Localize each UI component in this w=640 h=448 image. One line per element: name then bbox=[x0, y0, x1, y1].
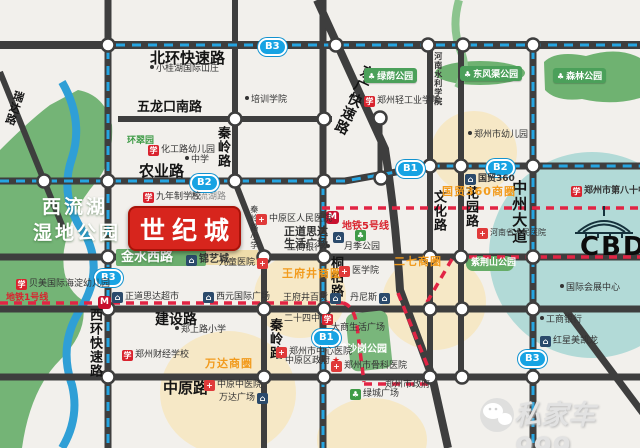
poi-label: 红星美凯龙 bbox=[553, 336, 598, 346]
poi-hongxing-macalline: ⌂红星美凯龙 bbox=[540, 336, 598, 347]
shop-icon: ⌂ bbox=[540, 336, 551, 347]
poi-icbc-east: 工商银行 bbox=[540, 316, 582, 326]
road-label-wulongkou: 五龙口南路 bbox=[137, 101, 202, 115]
shop-icon: ⌂ bbox=[112, 292, 123, 303]
poi-label: 中学 bbox=[191, 155, 209, 165]
poi-label: 锦艺城 bbox=[199, 254, 229, 265]
poi-label: 化工路幼儿园 bbox=[161, 145, 215, 155]
poi-zhengzhou-kindergarten: 郑州市幼儿园 bbox=[468, 131, 528, 141]
dot-icon bbox=[185, 156, 189, 160]
school-icon: 学 bbox=[143, 192, 154, 203]
watermark-text: 私家车999 bbox=[514, 393, 640, 448]
poi-label: 郑州市第八十中学 bbox=[584, 186, 640, 196]
poi-label: 河南省人民医院 bbox=[490, 228, 546, 237]
poi-label: 王府井百货 bbox=[283, 293, 328, 303]
lvyin-park-badge: ♣绿荫公园 bbox=[364, 68, 417, 83]
lvyin-park-label: 绿荫公园 bbox=[377, 72, 413, 82]
south-circle bbox=[317, 398, 427, 448]
forest-park-label: 森林公园 bbox=[566, 72, 602, 82]
poi-label: 郑上路小学 bbox=[181, 325, 226, 335]
school-icon: 学 bbox=[571, 186, 582, 197]
poi-guomao360: ⌂国贸360 bbox=[465, 174, 515, 185]
poi-label: 医学院 bbox=[352, 266, 379, 276]
brt-badge-b2-west: B2 bbox=[190, 174, 219, 192]
poi-wanda-plaza: 万达广场⌂ bbox=[219, 393, 268, 404]
shop-icon: ⌂ bbox=[333, 232, 344, 243]
poi-label: 中原区政府 bbox=[285, 356, 330, 366]
poi-yixueyuan: +医学院 bbox=[339, 266, 379, 277]
forest-park-badge: ♣森林公园 bbox=[553, 68, 606, 83]
dot-icon bbox=[540, 316, 544, 320]
zijingshan-park-label: 紫荆山公园 bbox=[471, 259, 516, 269]
dot-icon bbox=[326, 244, 330, 248]
poi-label: 丹尼斯 bbox=[350, 293, 377, 303]
dot-icon bbox=[245, 96, 249, 100]
poi-wangfujing-store: 王府井百货⌂ bbox=[283, 293, 341, 304]
wetland-park-label-1: 西流湖 bbox=[42, 197, 108, 218]
poi-caijing-school: 学郑州财经学校 bbox=[122, 350, 189, 361]
shijicheng-project-badge: 世纪城 bbox=[128, 206, 241, 251]
tree-icon: ♣ bbox=[368, 72, 375, 81]
school-icon: 学 bbox=[16, 279, 27, 290]
poi-label: 国贸360 bbox=[478, 174, 515, 184]
poi-label: 工商银行 bbox=[287, 243, 323, 253]
dot-icon bbox=[468, 131, 472, 135]
hospital-icon: + bbox=[331, 361, 342, 372]
poi-label: 正道思达超市 bbox=[125, 292, 179, 302]
erqi-district-label: 二七商圈 bbox=[394, 256, 442, 268]
wangfujing-district-label: 王府井商圈 bbox=[282, 268, 342, 280]
shop-icon: ⌂ bbox=[203, 292, 214, 303]
poi-label: 贝美国际海淀幼儿园 bbox=[29, 279, 110, 289]
poi-lvcheng-square: ♣绿城广场 bbox=[350, 389, 399, 400]
cbd-label: CBD bbox=[580, 232, 640, 262]
poi-jiunianzhi-school: 学九年制学校 bbox=[143, 192, 201, 203]
dot-icon bbox=[560, 284, 564, 288]
shop-icon: ⌂ bbox=[465, 174, 476, 185]
road-label-zhongyuan: 中原路 bbox=[163, 380, 208, 396]
school-icon: 学 bbox=[364, 96, 375, 107]
hospital-icon: + bbox=[477, 228, 488, 239]
park-icon: ♣ bbox=[350, 389, 361, 400]
poi-label: 郑州轻工业学院 bbox=[377, 96, 440, 106]
metro-logo-icon: M bbox=[98, 296, 111, 309]
wanda-district-label: 万达商圈 bbox=[205, 358, 253, 370]
poi-shuili-college: 河南水利学院 bbox=[433, 52, 442, 106]
hospital-icon: + bbox=[257, 258, 268, 269]
poi-guke-hospital: +郑州市骨科医院 bbox=[331, 361, 407, 372]
poi-xiyuan-plaza: ⌂西元国际广场 bbox=[203, 292, 270, 303]
shop-icon: ⌂ bbox=[257, 393, 268, 404]
wetland-park-label-2: 湿地公园 bbox=[33, 223, 121, 244]
metro-line1-label: 地铁1号线 bbox=[6, 294, 48, 304]
school-icon: 学 bbox=[122, 350, 133, 361]
road-label-nongye: 农业路 bbox=[139, 163, 184, 179]
poi-convention-center: 国际会展中心 bbox=[560, 284, 620, 294]
poi-dennis: 丹尼斯⌂ bbox=[350, 293, 390, 304]
brt-badge-b3-north: B3 bbox=[258, 38, 287, 56]
poi-peixun: 培训学院 bbox=[245, 96, 287, 106]
poi-ershisi-school: 二十四中学 bbox=[284, 314, 333, 325]
poi-label: 二十四中 bbox=[284, 314, 320, 324]
poi-label: 国际会展中心 bbox=[566, 283, 620, 293]
poi-dashang-plaza: 大商生活广场 bbox=[331, 324, 385, 334]
shop-icon: ⌂ bbox=[379, 293, 390, 304]
brt-badge-b1-north: B1 bbox=[396, 160, 425, 178]
dot-icon bbox=[175, 326, 179, 330]
hospital-icon: + bbox=[339, 266, 350, 277]
metro-line5-label: 地铁5号线 bbox=[342, 222, 389, 233]
hospital-icon: + bbox=[204, 380, 215, 391]
poi-zhengdao-market: ⌂正道思达超市 bbox=[112, 292, 179, 303]
poi-label: 中原中医院 bbox=[217, 380, 262, 390]
poi-xiaoguihu: 小桂湖国际山庄 bbox=[150, 65, 219, 75]
poi-jinyi-mall: ⌂锦艺城 bbox=[186, 254, 229, 266]
dongfengqu-park-label: 东风渠公园 bbox=[473, 70, 518, 80]
poi-label: 郑州财经学校 bbox=[135, 350, 189, 360]
poi-qinggong-university: 学郑州轻工业学院 bbox=[364, 96, 440, 107]
guomao-district-label: 国贸360商圈 bbox=[442, 186, 516, 198]
road-label-jinshui-west: 金水西路 bbox=[121, 251, 173, 265]
poi-renmin-hospital: +中原区人民医院 bbox=[256, 214, 332, 225]
brt-badge-b3-east: B3 bbox=[518, 350, 547, 368]
map-canvas: 北环快速路 五龙口南路 农业路 金水西路 建设路 中原路 瑞达路 京广快速路 秦… bbox=[0, 0, 640, 448]
poi-label: 万达广场 bbox=[219, 393, 255, 403]
poi-label: 绿城广场 bbox=[363, 389, 399, 399]
dot-icon bbox=[150, 65, 154, 69]
wechat-logo-icon bbox=[480, 398, 514, 432]
school-icon: 学 bbox=[148, 145, 159, 156]
dongfengqu-park-badge: ♣东风渠公园 bbox=[460, 66, 522, 81]
poi-beimei-kindergarten: 学贝美国际海淀幼儿园 bbox=[16, 279, 110, 290]
tree-icon: ♣ bbox=[464, 70, 471, 79]
poi-sheng-hospital: +河南省人民医院 bbox=[477, 228, 546, 239]
tree-icon: ♣ bbox=[557, 72, 564, 81]
hospital-icon: + bbox=[256, 214, 267, 225]
poi-qinling-primary: 秦岭路小学 bbox=[249, 205, 258, 250]
poi-label: 工商银行 bbox=[546, 315, 582, 325]
poi-zhongxue: 中学 bbox=[185, 156, 209, 166]
shop-icon: ⌂ bbox=[330, 293, 341, 304]
yueji-park-label: 月季公园 bbox=[344, 243, 380, 253]
poi-label: 九年制学校 bbox=[156, 192, 201, 202]
poi-label: 培训学院 bbox=[251, 95, 287, 105]
poi-bashi-school: 学郑州市第八十中学 bbox=[571, 186, 640, 197]
poi-label: 郑州市幼儿园 bbox=[474, 130, 528, 140]
poi-icbc-west: 工商银行 bbox=[287, 244, 332, 254]
poi-label: 西元国际广场 bbox=[216, 292, 270, 302]
poi-zhongyi-hospital: +中原中医院 bbox=[204, 380, 262, 391]
poi-label: 中原区人民医院 bbox=[269, 214, 332, 224]
road-label-qinling-north: 秦岭路 bbox=[215, 126, 229, 168]
poi-label: 郑州市骨科医院 bbox=[344, 361, 407, 371]
road-label-xihuan: 西环快速路 bbox=[87, 308, 101, 378]
shop-icon: ⌂ bbox=[186, 255, 197, 266]
poi-label: 小桂湖国际山庄 bbox=[156, 64, 219, 74]
poi-zhengshang-primary: 郑上路小学 bbox=[175, 326, 226, 336]
